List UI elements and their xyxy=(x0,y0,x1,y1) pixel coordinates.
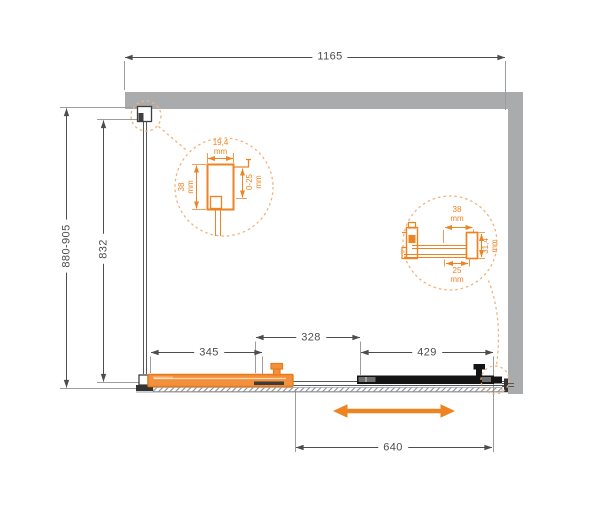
dim-overlap-width: 328 xyxy=(296,331,326,344)
threshold-hatch xyxy=(153,388,502,392)
plan-drawing-linework xyxy=(0,0,600,505)
wall-profile-section xyxy=(208,165,234,210)
dim-overall-height: 880-905 xyxy=(60,219,73,272)
dim-opening-width: 640 xyxy=(378,441,408,454)
dim-glass-height: 832 xyxy=(97,234,110,264)
top-wall-profile-insert xyxy=(139,113,144,121)
wall-right xyxy=(508,106,523,394)
rail-end-block xyxy=(467,233,478,259)
fixed-panel xyxy=(148,364,293,387)
side-glass-panel xyxy=(136,107,153,392)
bottom-corner-bracket xyxy=(139,375,148,385)
dim-unit: mm xyxy=(450,276,463,285)
fixed-panel-clamp xyxy=(254,382,284,386)
detail-right-rail-width-label: 25 mm xyxy=(450,267,463,285)
detail-left-profile-width-label: 19,4 mm xyxy=(213,139,229,157)
door-roller-carriage-right xyxy=(482,377,491,382)
dim-fixed-panel-width: 345 xyxy=(194,346,224,359)
wall-top xyxy=(125,92,523,109)
wall-profile-notch xyxy=(211,197,222,209)
door-knob-stem xyxy=(476,369,482,377)
dim-unit: mm xyxy=(255,174,264,190)
extension-lines xyxy=(60,61,506,452)
detail-right-block-width-label: 38 mm xyxy=(450,206,463,224)
dim-overall-width: 1165 xyxy=(312,51,347,64)
dim-unit: mm xyxy=(213,148,229,157)
slide-direction-arrow-icon xyxy=(333,404,455,418)
door-end-cap xyxy=(494,377,502,384)
profile-flange xyxy=(234,159,252,168)
dim-unit: mm xyxy=(450,215,463,224)
detail-right-block-height-label: 31,4 mm xyxy=(482,238,500,254)
glass-in-profile xyxy=(216,210,221,237)
door-knob xyxy=(474,364,486,370)
dim-unit: mm xyxy=(187,180,196,193)
door-roller-carriage-left xyxy=(359,377,376,382)
detail-circle-right xyxy=(402,196,509,394)
rail-section-lines xyxy=(404,246,467,258)
fixed-panel-knob xyxy=(271,364,283,370)
roller-wheel xyxy=(409,235,416,243)
detail-left-adjustment-label: 0-25 mm xyxy=(246,174,264,190)
shower-enclosure-plan-drawing: 1165 880-905 832 345 328 429 640 19,4 mm… xyxy=(0,0,600,505)
detail-left-profile-depth-label: 38 mm xyxy=(178,180,196,193)
dim-unit: mm xyxy=(491,238,500,254)
dim-door-width: 429 xyxy=(412,346,442,359)
detail-circle-left xyxy=(131,101,273,236)
